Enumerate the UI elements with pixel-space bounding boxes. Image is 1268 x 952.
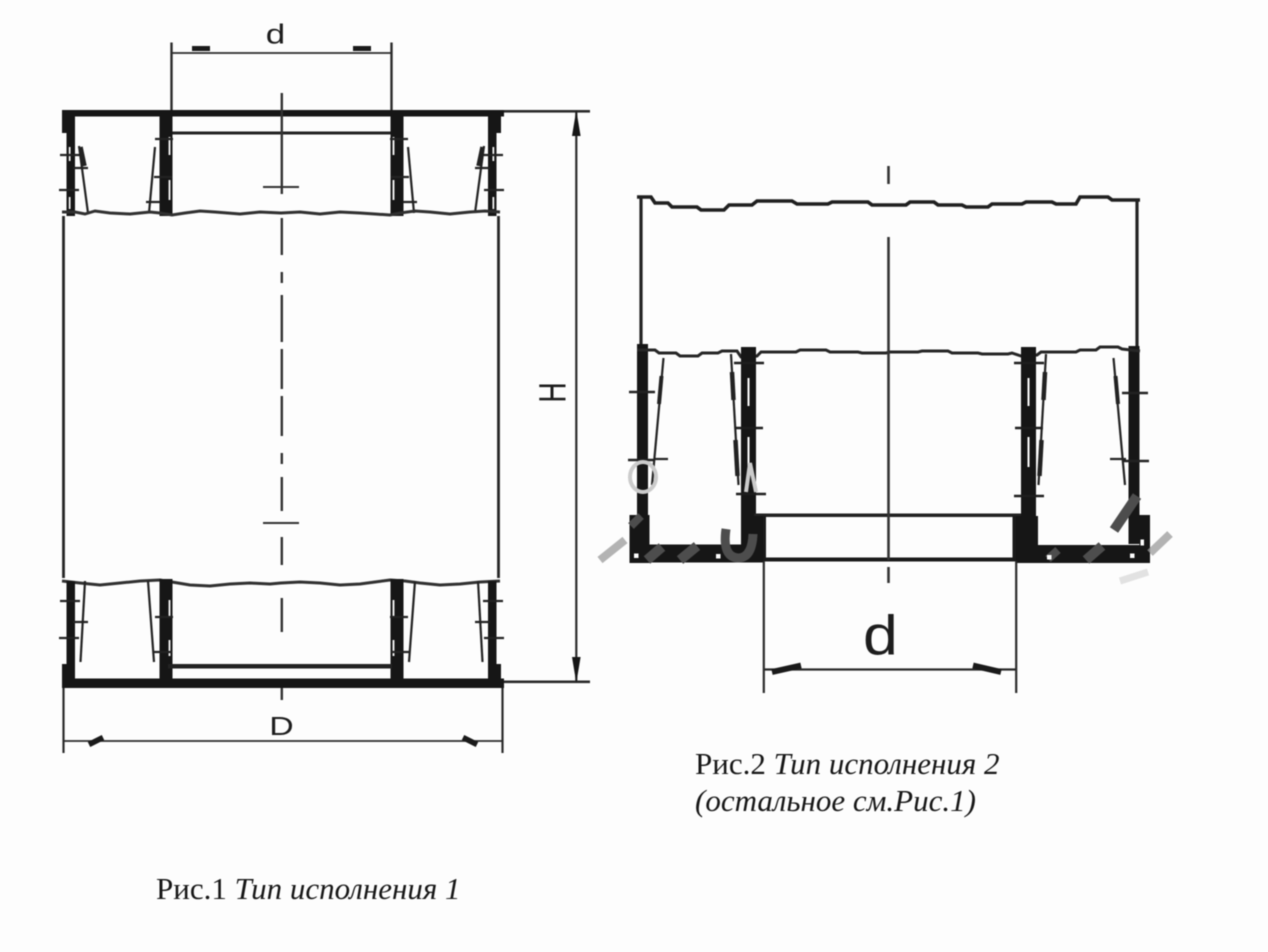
svg-text:(остальное см.Рис.1): (остальное см.Рис.1) bbox=[695, 783, 976, 818]
svg-text:d: d bbox=[863, 604, 898, 667]
svg-text:Рис.1 Тип исполнения 1: Рис.1 Тип исполнения 1 bbox=[156, 871, 461, 906]
svg-text:d: d bbox=[266, 18, 285, 50]
svg-text:D: D bbox=[269, 713, 293, 741]
svg-text:Рис.2 Тип исполнения 2: Рис.2 Тип исполнения 2 bbox=[695, 746, 1000, 781]
svg-text:H: H bbox=[533, 382, 575, 403]
